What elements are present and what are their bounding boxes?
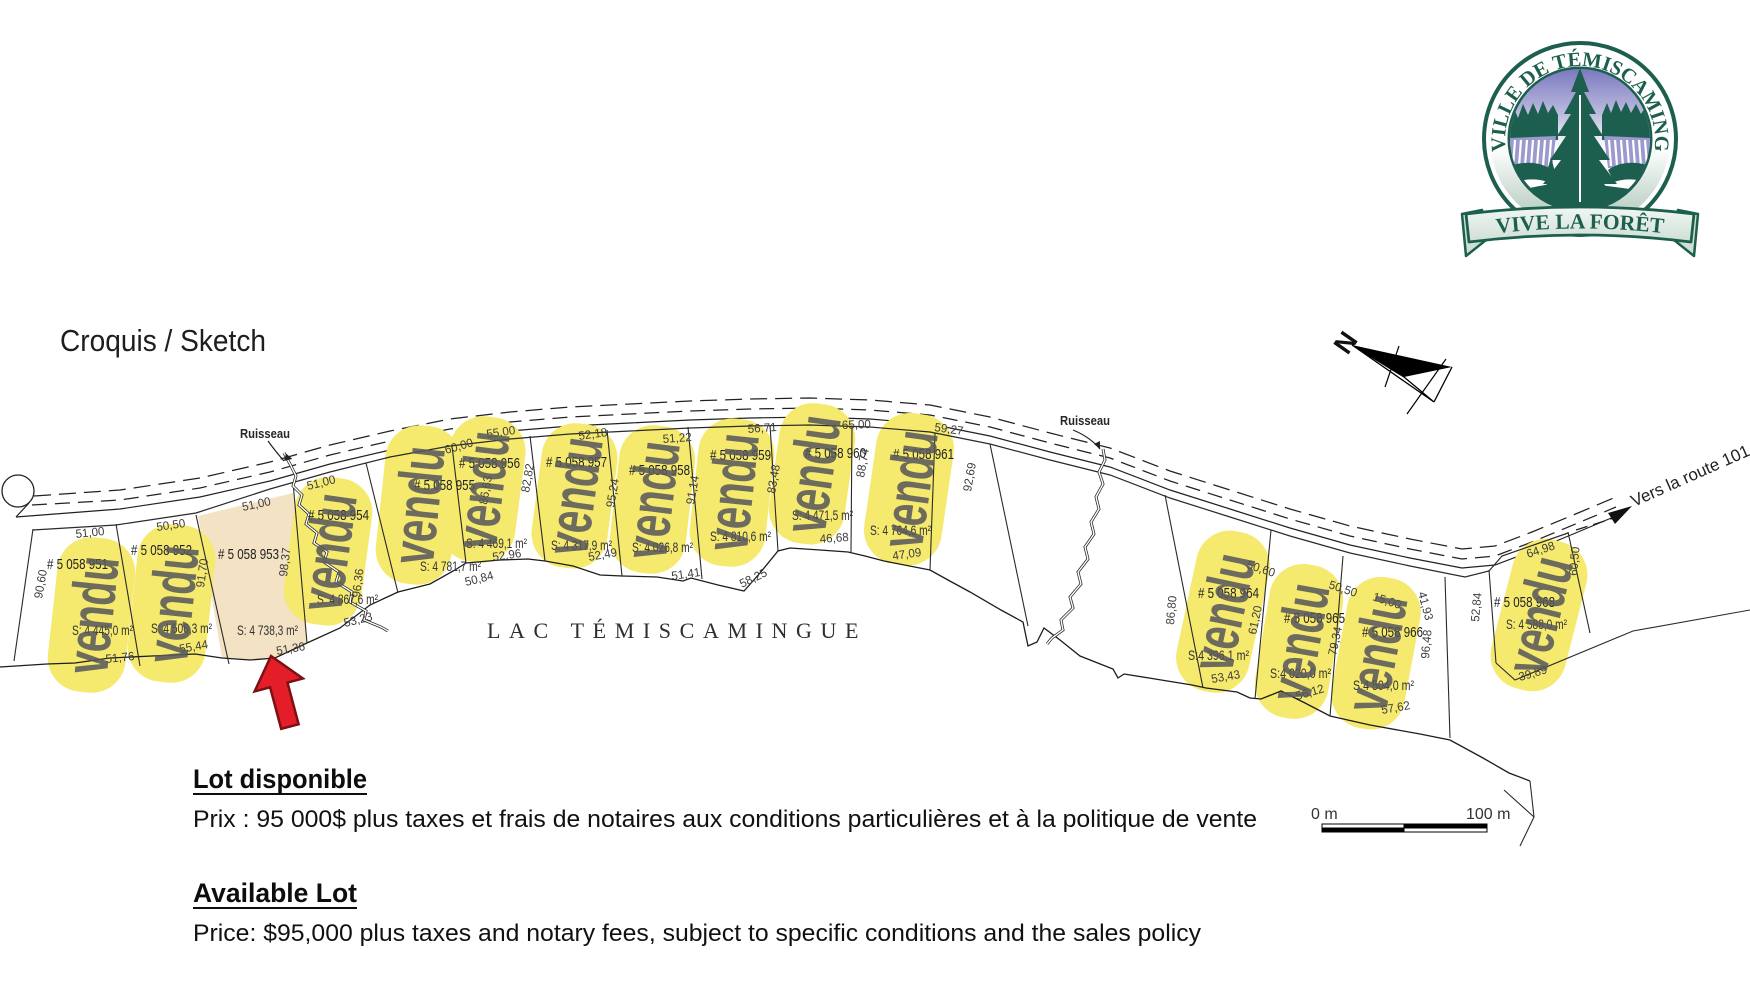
svg-text:vendu: vendu — [132, 542, 212, 666]
svg-text:vendu: vendu — [692, 430, 772, 554]
svg-text:0 m: 0 m — [1311, 806, 1338, 823]
svg-text:vendu: vendu — [611, 437, 693, 562]
svg-text:Ruisseau: Ruisseau — [1060, 413, 1110, 428]
svg-text:52,84: 52,84 — [1468, 592, 1485, 622]
svg-text:Price: $95,000 plus taxes and: Price: $95,000 plus taxes and notary fee… — [193, 920, 1201, 947]
svg-text:56,71: 56,71 — [747, 420, 777, 436]
svg-text:96,48: 96,48 — [1418, 629, 1435, 659]
svg-text:86,80: 86,80 — [1163, 595, 1180, 625]
svg-text:Prix : 95 000$ plus taxes et f: Prix : 95 000$ plus taxes et frais de no… — [193, 806, 1257, 833]
svg-text:vendu: vendu — [441, 427, 523, 552]
svg-text:S: 4 738,3 m²: S: 4 738,3 m² — [237, 622, 298, 638]
svg-text:vendu: vendu — [52, 553, 132, 677]
svg-text:LAC TÉMISCAMINGUE: LAC TÉMISCAMINGUE — [487, 618, 868, 643]
svg-text:Ruisseau: Ruisseau — [240, 426, 290, 441]
svg-text:Available Lot: Available Lot — [193, 878, 357, 908]
svg-text:# 5 058 953: # 5 058 953 — [218, 546, 279, 563]
svg-text:Croquis / Sketch: Croquis / Sketch — [60, 323, 266, 358]
svg-text:100 m: 100 m — [1466, 806, 1510, 823]
svg-text:Lot disponible: Lot disponible — [193, 764, 367, 794]
